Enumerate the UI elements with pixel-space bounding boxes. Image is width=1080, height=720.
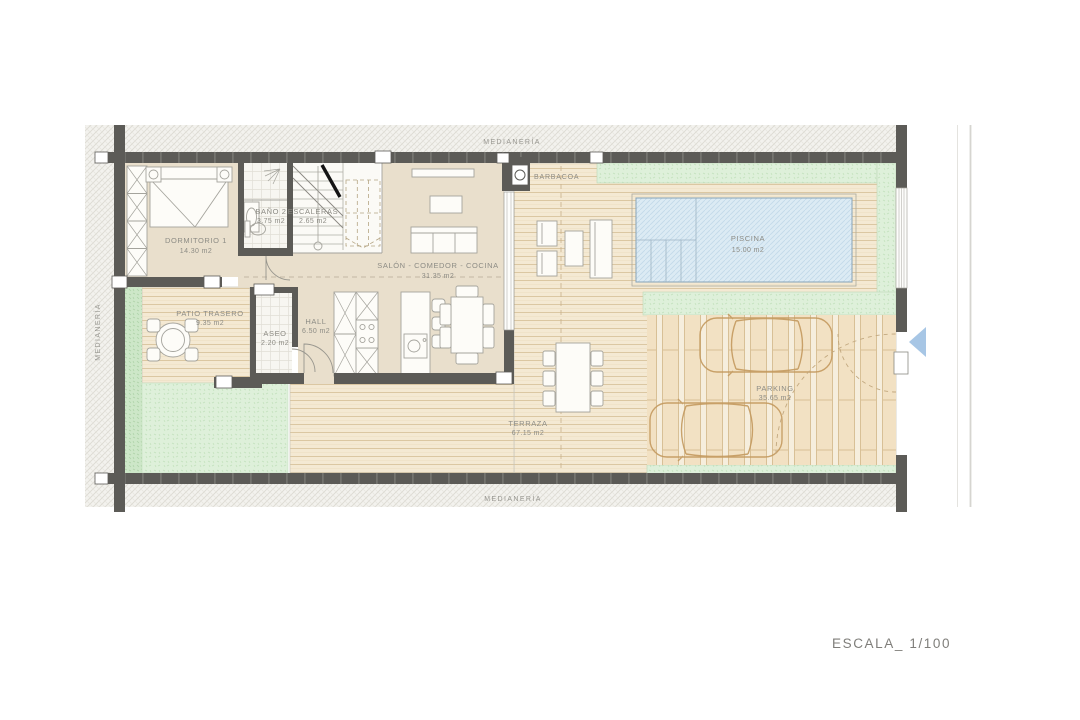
room-area-salon: 31.35 m2 [422, 273, 454, 280]
wall-east-middle [896, 288, 907, 332]
room-area-parking: 35.65 m2 [759, 395, 791, 402]
wall-south [97, 473, 905, 484]
sofa [411, 227, 477, 253]
grass-strip-middle [643, 292, 896, 315]
barbacoa-label: BARBACOA [534, 174, 579, 181]
entrance-arrow-icon [909, 327, 926, 357]
wall-dorm-bano [238, 163, 244, 253]
room-area-piscina: 15.00 m2 [732, 247, 764, 254]
room-label-bano: BAÑO 2 [255, 207, 286, 216]
room-label-patio: PATIO TRASERO [176, 309, 243, 318]
wall-aseo-east [292, 287, 298, 347]
wall-west [114, 125, 125, 512]
room-area-hall: 6.50 m2 [302, 328, 330, 335]
grass-strip-parking [647, 465, 896, 474]
room-area-escaleras: 2.65 m2 [299, 218, 327, 225]
medianeria-label-top: MEDIANERÍA [483, 137, 541, 146]
grass-strip-west [125, 287, 142, 473]
grass-strip-top [597, 163, 877, 183]
room-label-aseo: ASEO [263, 329, 286, 338]
room-area-dormitorio: 14.30 m2 [180, 248, 212, 255]
room-label-hall: HALL [305, 317, 326, 326]
sheet-edge [958, 125, 971, 507]
wardrobe [127, 166, 147, 276]
scale-label: ESCALA_ 1/100 [832, 636, 951, 651]
dining-table [451, 297, 483, 353]
room-area-bano: 3.75 m2 [257, 218, 285, 225]
floor-hall-north [238, 253, 382, 287]
coffee-table [430, 196, 462, 213]
terrace-dining-furniture [543, 343, 603, 412]
wall-aseo-west [250, 287, 256, 383]
bed [146, 167, 232, 227]
floor-door-gap [304, 373, 334, 384]
gate-post [894, 352, 908, 374]
kitchen-furniture [334, 286, 494, 377]
stove-icon [356, 320, 378, 348]
room-area-aseo: 2.20 m2 [261, 340, 289, 347]
room-label-parking: PARKING [756, 384, 793, 393]
room-label-escaleras: ESCALERAS [288, 207, 338, 216]
medianeria-label-bottom: MEDIANERÍA [484, 494, 542, 503]
room-area-terraza: 67.15 m2 [512, 430, 544, 437]
floor-plan-svg: MEDIANERÍA MEDIANERÍA MEDIANERÍA DORMITO… [0, 0, 1080, 720]
room-label-salon: SALÓN - COMEDOR - COCINA [377, 261, 499, 270]
room-label-terraza: TERRAZA [508, 419, 547, 428]
wall-bano-south [238, 248, 293, 256]
medianeria-label-left: MEDIANERÍA [93, 303, 102, 361]
tv-icon [412, 169, 474, 177]
salon-glazing [504, 192, 514, 330]
wall-east-upper [896, 125, 907, 188]
grass-area-southwest [142, 383, 288, 473]
toilet-icon [245, 221, 250, 237]
room-label-dormitorio: DORMITORIO 1 [165, 236, 227, 245]
terraza-deck-south [290, 383, 514, 473]
room-label-piscina: PISCINA [731, 234, 765, 243]
wall-east-lower [896, 455, 907, 512]
room-area-patio: 9.35 m2 [196, 320, 224, 327]
wall-house-south-right [334, 373, 512, 384]
floor-plan-page: MEDIANERÍA MEDIANERÍA MEDIANERÍA DORMITO… [0, 0, 1080, 720]
